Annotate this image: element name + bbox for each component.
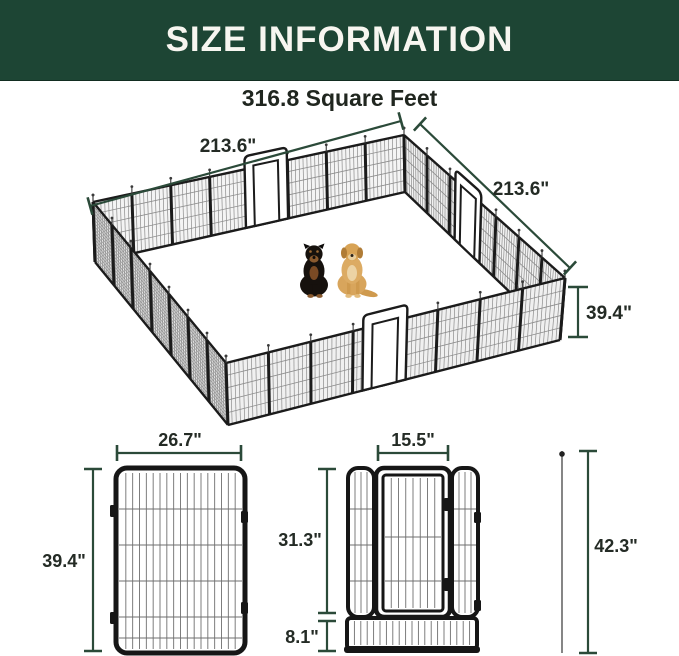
panel-height-dimension xyxy=(568,287,588,337)
panel-latch xyxy=(474,600,481,611)
bottom-height-dimension xyxy=(318,621,336,651)
top-edge-dim-label: 213.6" xyxy=(200,136,257,157)
bottom-strip-mesh xyxy=(354,621,469,645)
rottweiler-paw xyxy=(316,294,322,298)
door-hinge xyxy=(444,578,451,591)
single-panel-detail: 26.7" 39.4" xyxy=(42,430,248,653)
total-height-dimension xyxy=(559,451,597,653)
panel-mesh xyxy=(119,473,242,649)
door-hinge xyxy=(444,498,451,511)
playpen-isometric xyxy=(92,127,567,425)
golden-chest xyxy=(347,265,357,281)
panel-height-dim-label: 39.4" xyxy=(586,303,632,324)
right-edge-dim-label: 213.6" xyxy=(493,179,550,200)
panel-latch xyxy=(474,512,481,523)
total-height-label: 42.3" xyxy=(594,536,638,556)
panel-connector xyxy=(241,602,248,614)
golden-ear xyxy=(341,247,347,258)
rottweiler-paw xyxy=(307,294,313,298)
size-information-diagram: 213.6" 213.6" 39.4" 26.7" 39.4" xyxy=(0,0,679,656)
rottweiler-nose xyxy=(313,256,316,259)
door-right-stile-mesh xyxy=(454,472,476,613)
rottweiler-brow xyxy=(316,250,319,253)
rottweiler-brow xyxy=(309,250,312,253)
bottom-height-label: 8.1" xyxy=(285,627,319,647)
door-width-label: 15.5" xyxy=(391,430,435,450)
base-bar xyxy=(344,646,480,653)
panel-connector xyxy=(110,505,117,517)
door-mesh xyxy=(385,478,441,608)
panel-height-label: 39.4" xyxy=(42,551,86,571)
panel-height-dimension-detail xyxy=(84,469,102,651)
panel-connector xyxy=(110,612,117,624)
reference-dot xyxy=(559,451,565,457)
golden-nose xyxy=(351,254,354,257)
golden-ear xyxy=(357,247,363,258)
door-panel-detail: 15.5" 31.3" 8.1" 42.3" xyxy=(278,430,638,653)
panel-connector xyxy=(241,511,248,523)
panel-width-label: 26.7" xyxy=(158,430,202,450)
golden-paw xyxy=(345,294,351,298)
door-height-label: 31.3" xyxy=(278,530,322,550)
golden-paw xyxy=(354,294,360,298)
door-left-stile-mesh xyxy=(350,472,372,613)
rottweiler-chest xyxy=(310,266,319,280)
